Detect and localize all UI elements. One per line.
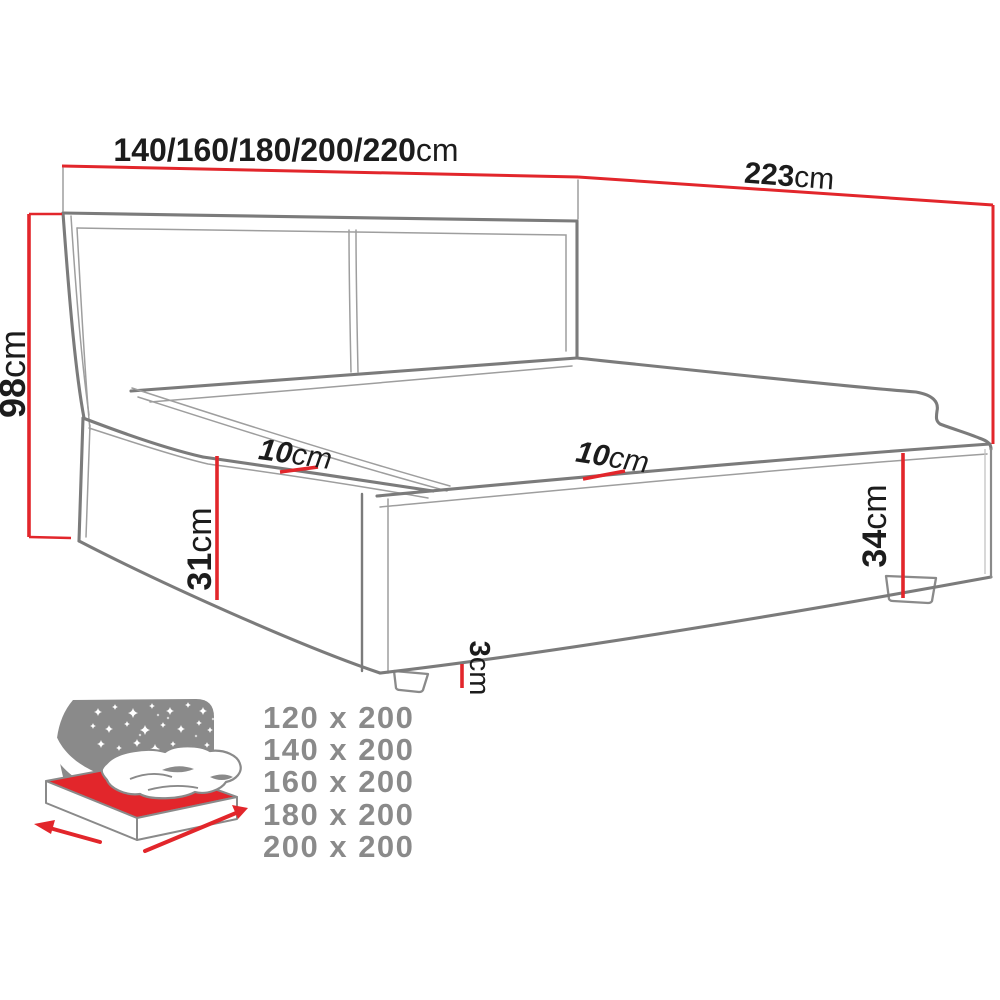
frame-head-top-edge	[83, 418, 203, 457]
headboard-panel-split-right	[356, 230, 358, 372]
frame-left-corner-seam	[86, 425, 90, 537]
side-panel-height-label: 34cm	[856, 484, 894, 567]
dimension-head-ledge: 10cm	[257, 433, 334, 476]
mattress-sizes-bed-icon	[34, 699, 248, 851]
icon-arrow-left-head	[34, 820, 55, 834]
dimension-width: 140/160/180/200/220cm	[62, 132, 578, 219]
headboard-height-label: 98cm	[0, 330, 33, 418]
size-variant-item: 180 x 200	[263, 797, 414, 832]
bed-dimensions-diagram-page: 140/160/180/200/220cm 223cm 98cm 31cm 34…	[0, 0, 1000, 1000]
dimension-headboard-height: 98cm	[0, 214, 71, 538]
length-dimension-label: 223cm	[743, 157, 835, 197]
mattress-back-edge	[131, 358, 577, 391]
head-ledge-label: 10cm	[257, 433, 334, 476]
size-variant-item: 140 x 200	[263, 732, 414, 767]
headboard-inner-border	[77, 228, 566, 351]
size-variants-list: 120 x 200 140 x 200 160 x 200 180 x 200 …	[263, 700, 414, 864]
headboard-top-edge	[63, 213, 577, 221]
size-variant-item: 160 x 200	[263, 764, 414, 799]
size-variant-item: 120 x 200	[263, 700, 414, 735]
size-variant-item: 200 x 200	[263, 829, 414, 864]
front-leg	[394, 671, 428, 692]
leg-height-label: 3cm	[463, 641, 495, 696]
dimension-front-panel-height: 31cm	[181, 456, 219, 600]
icon-arrow-left-line	[46, 827, 100, 842]
frame-left-corner-edge	[79, 418, 83, 541]
dimension-length: 223cm	[578, 157, 993, 444]
headboard-panel-split-left	[349, 230, 351, 372]
dimension-leg-height: 3cm	[462, 641, 495, 696]
dimension-side-ledge: 10cm	[574, 436, 652, 480]
mattress-right-edge	[577, 358, 991, 449]
frame-bottom-left-edge	[79, 541, 380, 673]
frame-rail-top-edge	[377, 444, 990, 496]
bed-dimensions-diagram: 140/160/180/200/220cm 223cm 98cm 31cm 34…	[0, 0, 1000, 1000]
side-ledge-label: 10cm	[574, 436, 652, 480]
headboard-height-tick-bottom	[29, 537, 71, 538]
front-panel-height-label: 31cm	[181, 507, 219, 590]
width-dimension-label: 140/160/180/200/220cm	[113, 132, 458, 168]
frame-rail-seam	[380, 454, 987, 507]
